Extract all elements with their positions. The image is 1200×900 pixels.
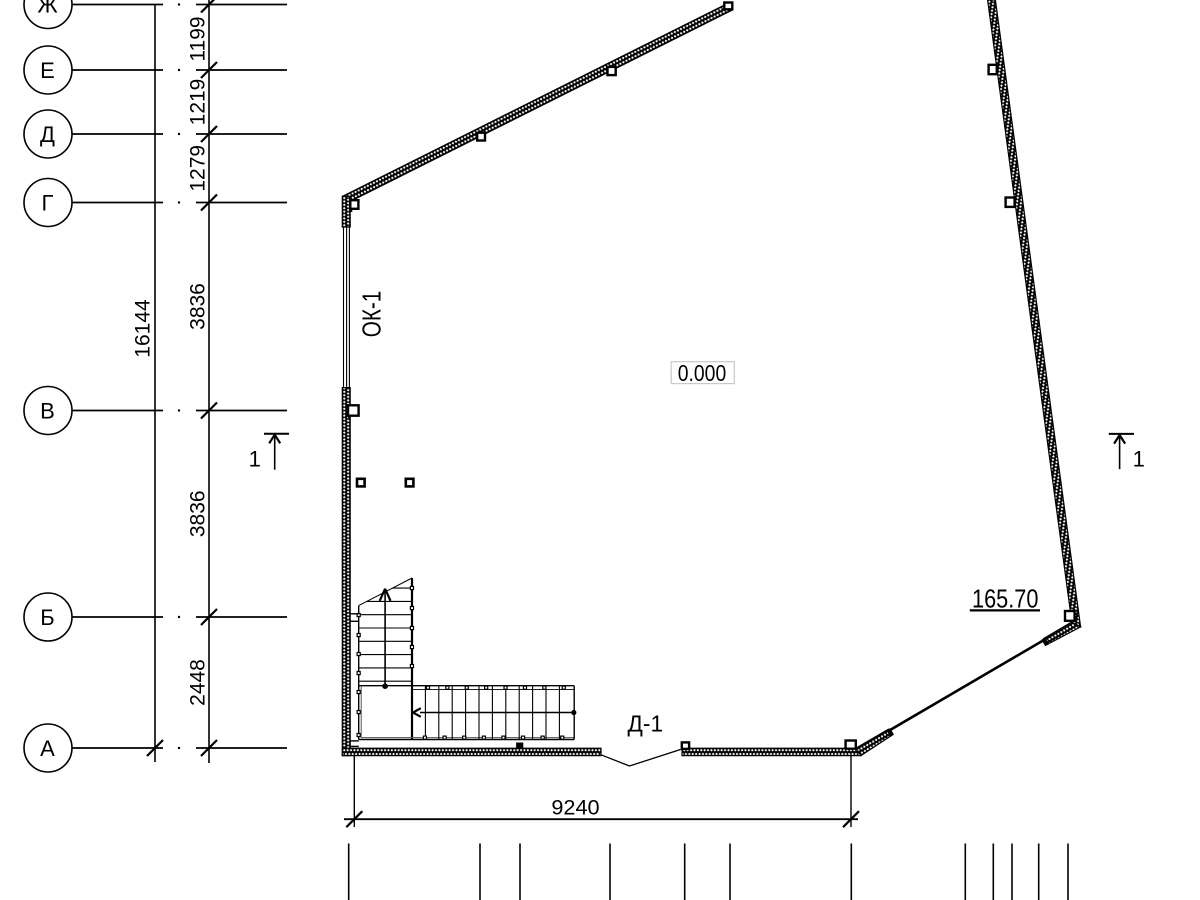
svg-text:Д: Д: [40, 122, 55, 147]
svg-text:Б: Б: [40, 605, 54, 630]
svg-text:1199: 1199: [187, 16, 210, 61]
svg-text:Г: Г: [42, 190, 54, 215]
svg-text:Е: Е: [40, 58, 55, 83]
svg-text:1279: 1279: [187, 145, 210, 192]
svg-text:0.000: 0.000: [678, 360, 726, 386]
svg-text:ОК-1: ОК-1: [356, 291, 386, 338]
svg-text:3836: 3836: [187, 283, 210, 330]
svg-text:2448: 2448: [187, 659, 210, 706]
svg-text:Д-1: Д-1: [628, 710, 664, 736]
svg-text:9240: 9240: [551, 796, 599, 820]
svg-text:А: А: [40, 736, 55, 761]
svg-text:3836: 3836: [187, 490, 210, 537]
svg-text:165.70: 165.70: [972, 585, 1038, 613]
svg-text:1: 1: [1133, 446, 1145, 471]
svg-text:В: В: [40, 398, 55, 423]
svg-text:1219: 1219: [187, 79, 210, 126]
svg-text:1: 1: [249, 446, 261, 471]
svg-text:16144: 16144: [132, 299, 155, 358]
svg-text:Ж: Ж: [37, 0, 58, 17]
